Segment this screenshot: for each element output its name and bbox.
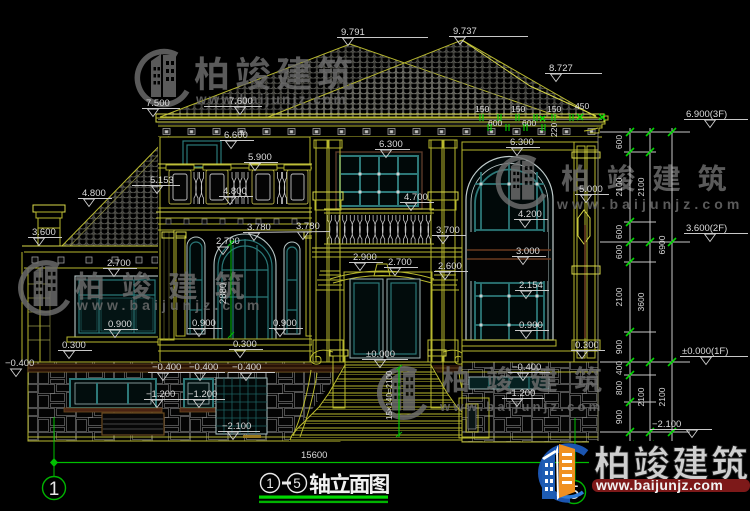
svg-text:8.727: 8.727 [549, 63, 573, 74]
svg-text:±0.000: ±0.000 [366, 349, 395, 360]
svg-text:600: 600 [614, 135, 624, 149]
svg-text:6.600: 6.600 [224, 130, 248, 141]
svg-text:3.600: 3.600 [32, 227, 56, 238]
svg-text:−1.200: −1.200 [188, 389, 217, 400]
svg-text:3.700: 3.700 [436, 225, 460, 236]
svg-text:2100: 2100 [657, 387, 667, 406]
svg-text:220: 220 [549, 123, 559, 137]
svg-text:7.500: 7.500 [146, 98, 170, 109]
svg-text:0.900: 0.900 [108, 319, 132, 330]
svg-text:2.700: 2.700 [216, 236, 240, 247]
svg-text:0.900: 0.900 [192, 318, 216, 329]
svg-text:3.780: 3.780 [247, 222, 271, 233]
svg-text:2100: 2100 [636, 177, 646, 196]
svg-text:−0.400: −0.400 [512, 362, 541, 373]
svg-text:3600: 3600 [636, 292, 646, 311]
svg-text:900: 900 [614, 340, 624, 354]
svg-text:2.600: 2.600 [438, 261, 462, 272]
svg-text:4.700: 4.700 [404, 192, 428, 203]
svg-text:6.300: 6.300 [510, 137, 534, 148]
svg-text:2.900: 2.900 [353, 252, 377, 263]
svg-text:0.900: 0.900 [273, 318, 297, 329]
svg-text:15×140=2100: 15×140=2100 [385, 370, 394, 420]
svg-text:800: 800 [614, 381, 624, 395]
svg-text:−2.100: −2.100 [652, 419, 681, 430]
svg-text:www.baijunjz.com: www.baijunjz.com [195, 92, 348, 107]
svg-text:2.154: 2.154 [519, 280, 543, 291]
svg-text:600: 600 [614, 245, 624, 259]
svg-text:−0.400: −0.400 [5, 358, 34, 369]
svg-text:4.200: 4.200 [518, 209, 542, 220]
svg-text:600: 600 [488, 118, 502, 128]
svg-text:0.900: 0.900 [519, 320, 543, 331]
svg-text:0.300: 0.300 [575, 340, 599, 351]
svg-text:4.800: 4.800 [82, 188, 106, 199]
svg-text:±0.000(1F): ±0.000(1F) [682, 346, 728, 357]
svg-text:9.737: 9.737 [453, 26, 477, 37]
svg-text:9.791: 9.791 [341, 27, 365, 38]
svg-text:1: 1 [266, 476, 274, 491]
svg-text:2.700: 2.700 [388, 257, 412, 268]
svg-text:−0.400: −0.400 [232, 362, 261, 373]
svg-text:15600: 15600 [301, 450, 327, 461]
svg-text:450: 450 [575, 101, 589, 111]
svg-text:6.300: 6.300 [379, 139, 403, 150]
svg-text:6.900(3F): 6.900(3F) [686, 109, 727, 120]
svg-text:1: 1 [49, 479, 60, 500]
svg-text:5.153: 5.153 [150, 175, 174, 186]
svg-text:2880: 2880 [218, 283, 229, 304]
svg-text:0.300: 0.300 [62, 340, 86, 351]
svg-text:3.780: 3.780 [296, 221, 320, 232]
svg-text:2100: 2100 [614, 177, 624, 196]
svg-text:400: 400 [614, 361, 624, 375]
svg-text:3.600(2F): 3.600(2F) [686, 223, 727, 234]
svg-text:−1.200: −1.200 [146, 389, 175, 400]
svg-text:−2.100: −2.100 [222, 421, 251, 432]
svg-text:−0.400: −0.400 [189, 362, 218, 373]
svg-text:5.000: 5.000 [579, 184, 603, 195]
svg-text:−0.400: −0.400 [152, 362, 181, 373]
svg-text:www.baijunjz.com: www.baijunjz.com [595, 477, 723, 493]
svg-text:150: 150 [547, 104, 561, 114]
svg-text:6900: 6900 [657, 235, 667, 254]
svg-text:5: 5 [293, 476, 301, 491]
svg-text:150: 150 [511, 104, 525, 114]
svg-text:2.700: 2.700 [107, 258, 131, 269]
svg-text:900: 900 [614, 410, 624, 424]
svg-text:150: 150 [475, 104, 489, 114]
svg-text:7.600: 7.600 [229, 96, 253, 107]
svg-text:0.300: 0.300 [233, 339, 257, 350]
svg-text:−1.200: −1.200 [506, 388, 535, 399]
svg-text:600: 600 [614, 225, 624, 239]
svg-text:2100: 2100 [614, 287, 624, 306]
svg-text:4.800: 4.800 [223, 186, 247, 197]
svg-text:www.baijunjz.com: www.baijunjz.com [76, 297, 263, 313]
svg-text:3.000: 3.000 [516, 246, 540, 257]
svg-text:2100: 2100 [636, 387, 646, 406]
svg-text:5.900: 5.900 [248, 152, 272, 163]
